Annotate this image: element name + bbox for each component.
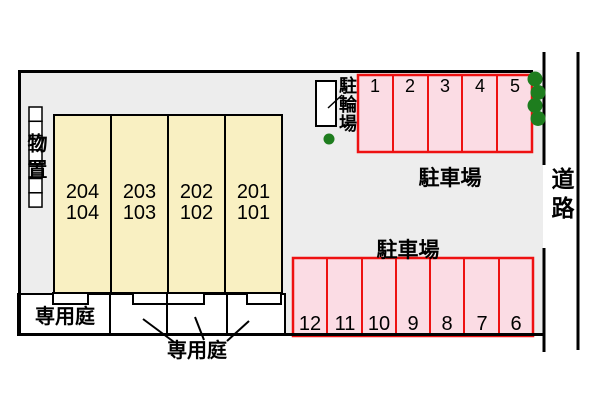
parking-space-number: 9 bbox=[398, 313, 428, 336]
parking-space-number: 7 bbox=[467, 313, 497, 336]
unit-label-204-104: 204 104 bbox=[54, 182, 111, 224]
unit-number: 201 bbox=[225, 182, 282, 203]
entry-step bbox=[53, 293, 88, 304]
entry-step bbox=[247, 293, 281, 304]
tree-icon bbox=[324, 134, 335, 145]
entry-step bbox=[133, 293, 204, 304]
parking-space-number: 8 bbox=[432, 313, 462, 336]
unit-number: 103 bbox=[111, 203, 168, 224]
parking-space-number: 6 bbox=[501, 313, 531, 336]
unit-label-202-102: 202 102 bbox=[168, 182, 225, 224]
garden-label-inline: 専用庭 bbox=[20, 307, 110, 327]
parking-space-number: 2 bbox=[395, 76, 425, 97]
parking-space-number: 1 bbox=[360, 76, 390, 97]
unit-number: 204 bbox=[54, 182, 111, 203]
garden-label-below: 専用庭 bbox=[157, 341, 237, 361]
storage-label: 物置 bbox=[25, 133, 45, 185]
parking-space-number: 5 bbox=[500, 76, 530, 97]
storage-cell bbox=[29, 107, 42, 121]
unit-number: 104 bbox=[54, 203, 111, 224]
tree-icon bbox=[531, 111, 546, 126]
parking-space-number: 11 bbox=[330, 313, 360, 336]
unit-number: 203 bbox=[111, 182, 168, 203]
unit-label-203-103: 203 103 bbox=[111, 182, 168, 224]
parking-space-number: 12 bbox=[295, 313, 325, 336]
bicycle-parking-label: 駐輪場 bbox=[338, 76, 356, 133]
tree-icon bbox=[531, 85, 546, 100]
storage-cell bbox=[29, 193, 42, 207]
parking-space-number: 4 bbox=[465, 76, 495, 97]
parking-lot-bottom-label: 駐車場 bbox=[346, 234, 470, 264]
unit-number: 202 bbox=[168, 182, 225, 203]
parking-space-number: 3 bbox=[430, 76, 460, 97]
road-label: 道路 bbox=[549, 167, 572, 225]
unit-label-201-101: 201 101 bbox=[225, 182, 282, 224]
unit-number: 101 bbox=[225, 203, 282, 224]
site-plan: 204 104 203 103 202 102 201 101 物置 駐輪場 1… bbox=[0, 0, 600, 400]
tree-icon bbox=[528, 98, 543, 113]
parking-lot-top-label: 駐車場 bbox=[388, 162, 512, 192]
parking-space-number: 10 bbox=[364, 313, 394, 336]
unit-number: 102 bbox=[168, 203, 225, 224]
